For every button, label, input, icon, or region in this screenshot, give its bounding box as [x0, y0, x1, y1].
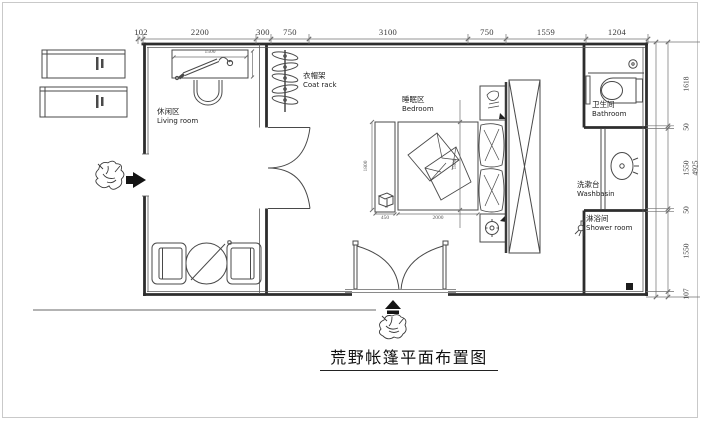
- lounge-chair-top: [42, 50, 125, 78]
- swing-door: [268, 128, 310, 209]
- dim-750-left: 750: [283, 27, 297, 37]
- floor-plan-canvas: 102 2200 300 750 3100 750 1559 1204 1618…: [0, 0, 701, 434]
- dim-4925-total: 4925: [691, 161, 700, 176]
- dim-2200: 2200: [191, 27, 209, 37]
- dim-desk-width-1500: 1500: [205, 49, 216, 55]
- nightstand-bottom: [480, 214, 506, 242]
- desk-chair: [194, 80, 222, 105]
- nightstand-top: [480, 86, 506, 120]
- dim-1550-upper: 1550: [682, 161, 691, 176]
- dim-300: 300: [256, 27, 270, 37]
- dim-1204: 1204: [608, 27, 626, 37]
- french-door: [345, 241, 456, 293]
- shower-room-label-zh: 淋浴间: [586, 214, 632, 224]
- dim-750-right: 750: [480, 27, 494, 37]
- dim-1618: 1618: [682, 77, 691, 92]
- dim-50-lower: 50: [682, 206, 691, 214]
- bathroom-label-zh: 卫生间: [592, 100, 626, 110]
- sketch-figure-bottom: [379, 315, 406, 339]
- wardrobe: [509, 80, 540, 253]
- coat-rack: [272, 50, 299, 112]
- tent-walls-inner-lines: [142, 44, 645, 294]
- dim-bed-depth-1800: 1800: [452, 159, 458, 170]
- washbasin-label: 洗漱台 Washbasin: [577, 180, 615, 199]
- shower-room-label-en: Shower room: [586, 224, 632, 233]
- bench: [375, 122, 395, 212]
- dim-1550-lower: 1550: [682, 244, 691, 259]
- pillow-top: [479, 124, 504, 167]
- dim-107: 107: [682, 288, 691, 299]
- living-room-label: 休闲区 Living room: [157, 107, 198, 126]
- living-room-label-zh: 休闲区: [157, 107, 198, 117]
- floor-drain: [626, 283, 633, 290]
- plan-title: 荒野帐篷平面布置图: [320, 344, 498, 371]
- dim-3100: 3100: [379, 27, 397, 37]
- shower-room-label: 淋浴间 Shower room: [586, 214, 632, 233]
- bedroom-label: 睡眠区 Bedroom: [402, 95, 434, 114]
- bed: [398, 122, 478, 210]
- round-table: [186, 241, 231, 284]
- coat-rack-label-en: Coat rack: [303, 81, 337, 90]
- dim-bench-width-450: 450: [381, 215, 389, 221]
- coat-rack-label-zh: 衣帽架: [303, 71, 337, 81]
- entry-arrow-left-icon: [126, 172, 146, 188]
- living-room-label-en: Living room: [157, 117, 198, 126]
- bedroom-label-zh: 睡眠区: [402, 95, 434, 105]
- washbasin-label-zh: 洗漱台: [577, 180, 615, 190]
- dim-50-upper: 50: [682, 123, 691, 131]
- dim-bed-width-2000: 2000: [433, 215, 444, 221]
- sketch-figure-left: [93, 160, 125, 192]
- lounge-chair-bottom: [40, 87, 127, 117]
- armchair-right: [227, 243, 261, 284]
- washbasin-label-en: Washbasin: [577, 190, 615, 199]
- armchair-left: [152, 243, 186, 284]
- entry-arrow-bottom-icon: [385, 300, 401, 314]
- bathroom-door: [586, 76, 590, 104]
- dim-102: 102: [134, 27, 148, 37]
- dim-1559: 1559: [537, 27, 555, 37]
- pillow-bottom: [479, 169, 504, 212]
- coat-rack-label: 衣帽架 Coat rack: [303, 71, 337, 90]
- bathroom-label-en: Bathroom: [592, 110, 626, 119]
- bedroom-label-en: Bedroom: [402, 105, 434, 114]
- dim-bench-depth-1800: 1800: [363, 161, 369, 172]
- bathroom-label: 卫生间 Bathroom: [592, 100, 626, 119]
- toilet: [588, 60, 644, 103]
